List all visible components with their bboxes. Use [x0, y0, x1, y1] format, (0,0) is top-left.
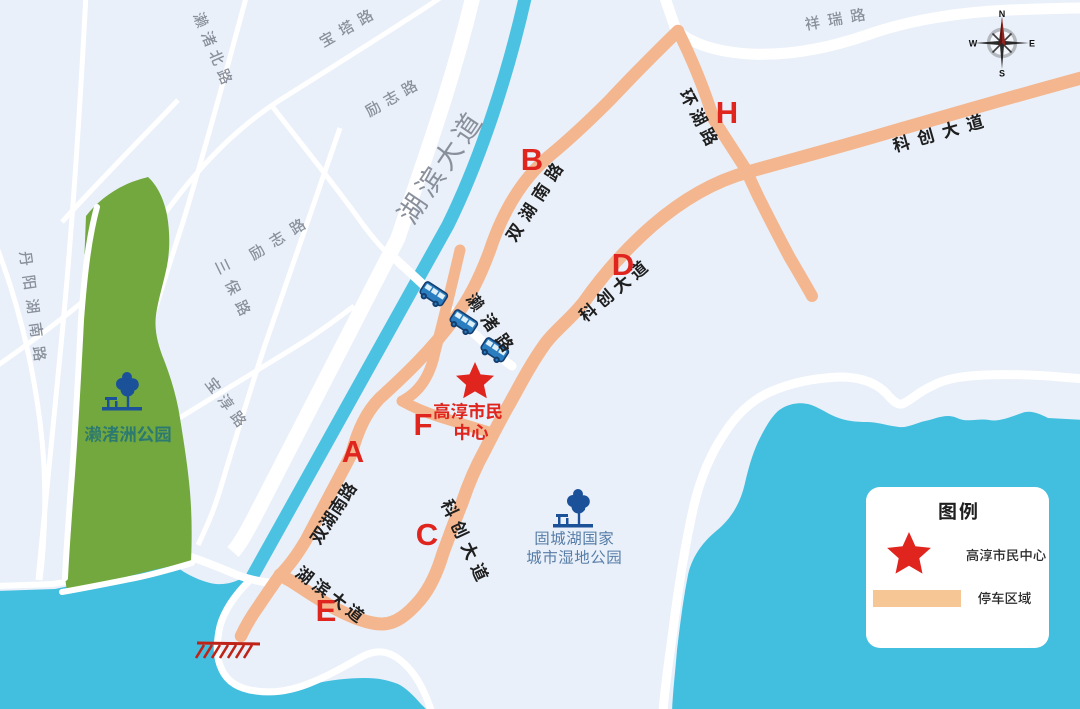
svg-text:W: W	[969, 39, 978, 49]
svg-text:E: E	[316, 593, 337, 628]
svg-text:E: E	[1029, 39, 1035, 49]
svg-text:B: B	[521, 142, 543, 177]
svg-text:N: N	[999, 9, 1006, 19]
svg-text:A: A	[342, 434, 364, 469]
svg-text:F: F	[414, 407, 433, 442]
svg-text:H: H	[716, 95, 738, 130]
svg-text:D: D	[612, 247, 634, 282]
svg-text:C: C	[416, 517, 438, 552]
svg-text:S: S	[999, 69, 1005, 79]
